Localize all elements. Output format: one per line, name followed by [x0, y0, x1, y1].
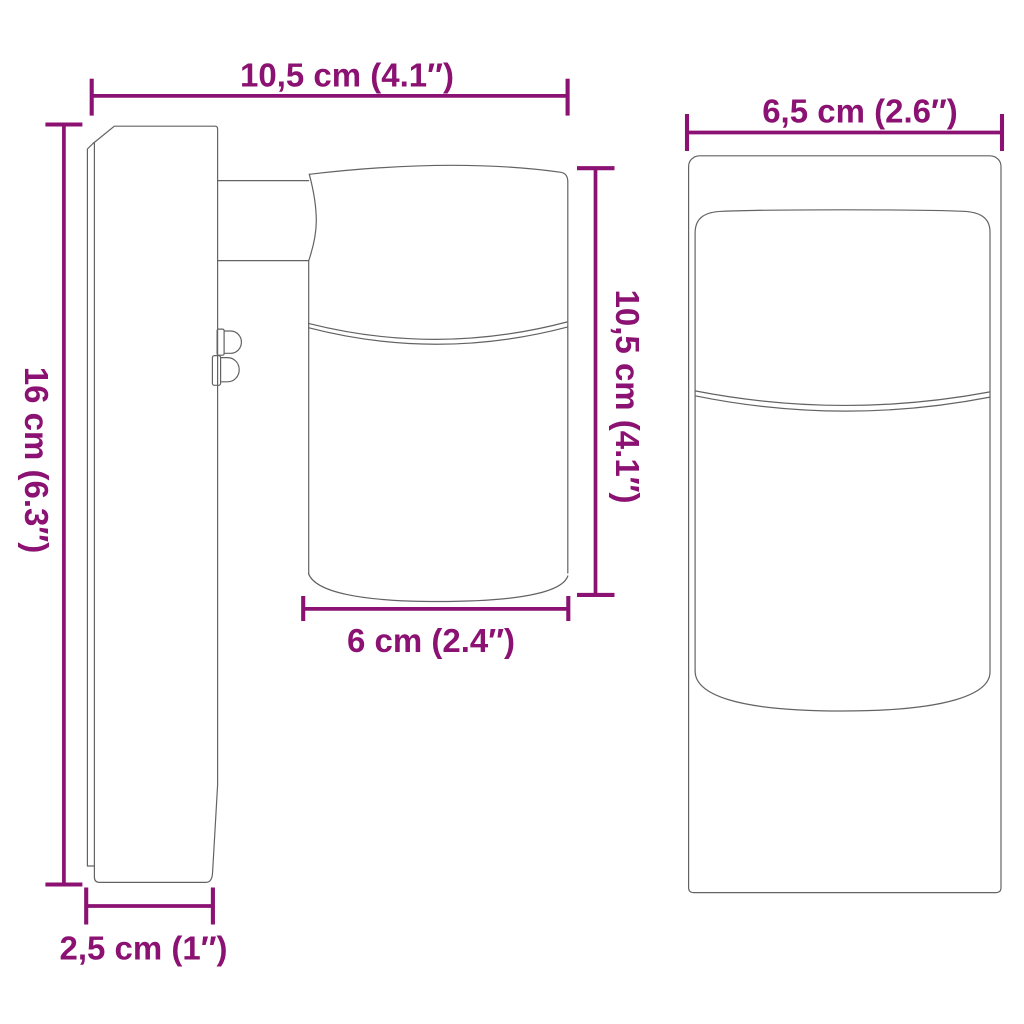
svg-text:2,5 cm (1″): 2,5 cm (1″) [59, 930, 227, 967]
svg-text:16 cm (6.3″): 16 cm (6.3″) [18, 367, 55, 553]
svg-text:10,5 cm (4.1″): 10,5 cm (4.1″) [240, 57, 454, 94]
svg-text:6 cm (2.4″): 6 cm (2.4″) [347, 622, 515, 659]
svg-text:10,5 cm (4.1″): 10,5 cm (4.1″) [609, 290, 646, 504]
svg-text:6,5 cm (2.6″): 6,5 cm (2.6″) [762, 93, 958, 130]
